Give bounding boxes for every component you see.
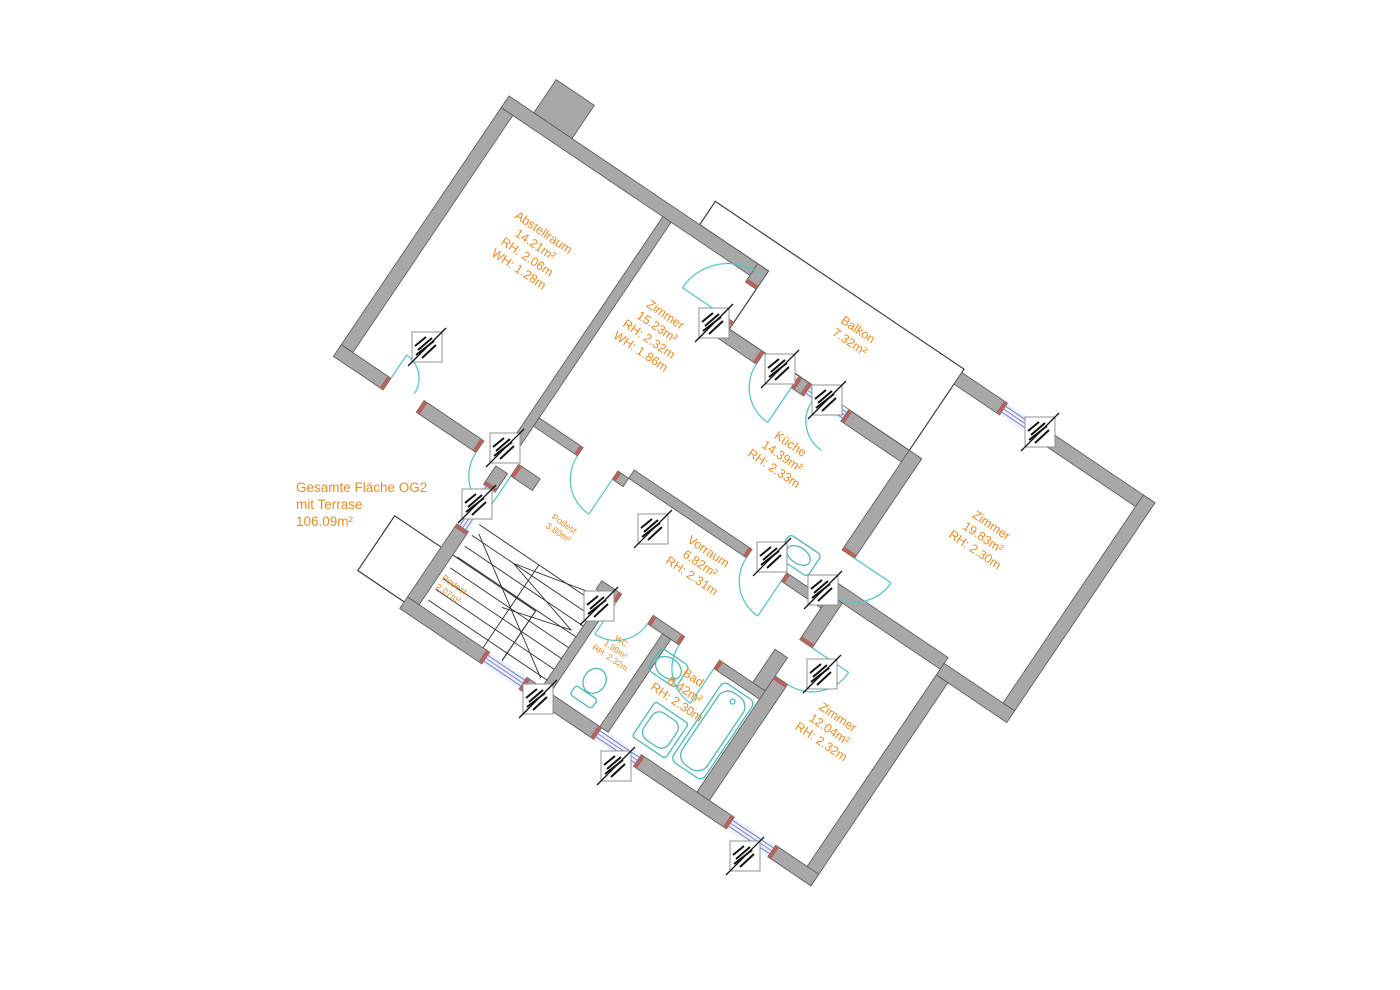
wall [511, 464, 540, 490]
wall [341, 108, 513, 353]
stair-tread [472, 535, 591, 615]
wall [842, 450, 922, 558]
zimmer1-door-stamp [634, 510, 672, 548]
wall [936, 663, 1014, 722]
kueche-door-stamp [753, 538, 791, 576]
stair-tread [450, 568, 569, 648]
sw-window-stamp [519, 680, 557, 718]
kueche-balcony-window-stamp [808, 381, 846, 419]
wall [534, 418, 584, 456]
bathtub-drain [729, 698, 736, 705]
wc-toilet-bowl [578, 664, 611, 698]
wc-door-stamp [580, 587, 618, 625]
room-label-wc: WC1.96m²RH: 2.32m [591, 626, 641, 674]
stair-tread [457, 557, 576, 637]
floor-plan-svg: Abstellraum14.21m²RH: 2.06mWH: 1.28mZimm… [0, 0, 1400, 990]
kitchen-sink-bowl [783, 542, 814, 570]
room-label-podest-zg: Podest2.07m² [434, 573, 469, 606]
kueche-balcony-door-leaf [768, 388, 791, 423]
wall [830, 583, 948, 669]
zimmer1-door-arc [554, 456, 612, 514]
stair-tread [465, 546, 584, 626]
wall [697, 676, 788, 800]
wall [400, 597, 490, 664]
total-area-line-2: mit Terrase [296, 496, 427, 513]
abstellraum-window-stamp [408, 328, 446, 366]
zimmer3-window-stamp [726, 837, 764, 875]
zimmer2-door-stamp [804, 571, 842, 609]
room-label-podest-og: Podest3.80m² [544, 512, 579, 545]
zimmer2-door-leaf [855, 558, 891, 583]
room-label-zimmer-3: Zimmer12.04m²RH: 2.32m [793, 695, 867, 764]
room-label-balkon: Balkon7.32m² [830, 313, 878, 359]
zimmer3-door-stamp [803, 655, 841, 693]
kueche-balcony-door-stamp [761, 350, 799, 388]
total-area-line-1: Gesamte Fläche OG2 [296, 479, 427, 496]
wall [416, 401, 484, 453]
kueche-door-leaf [758, 581, 781, 616]
room-label-zimmer-2: Zimmer19.83m²RH: 2.30m [946, 503, 1020, 572]
bad-window-stamp [597, 747, 635, 785]
wall [333, 345, 391, 390]
total-area-line-3: 106.09m² [296, 513, 427, 530]
floor-plan-page: Gesamte Fläche OG2 mit Terrase 106.09m² … [0, 0, 1400, 990]
sw-window-glazing [486, 658, 523, 683]
room-label-abstellraum: Abstellraum14.21m²RH: 2.06mWH: 1.28m [488, 208, 575, 293]
stair-window-stamp [458, 485, 496, 523]
zimmer1-door-leaf [589, 479, 612, 514]
entrance-door-stamp [486, 429, 524, 467]
zimmer2-window-stamp [1021, 413, 1059, 451]
room-label-zimmer-1: Zimmer15.23m²RH: 2.32mWH: 1.86m [611, 291, 695, 374]
total-area-label: Gesamte Fläche OG2 mit Terrase 106.09m² [296, 479, 427, 530]
wc-toilet [570, 663, 613, 709]
room-label-bad: Bad8.42m²RH: 2.30m [648, 655, 722, 724]
wc-toilet-tank [570, 685, 598, 709]
wall [1003, 495, 1155, 711]
zimmer1-balcony-door-stamp [695, 304, 733, 342]
abstellraum-opening-leaf [391, 355, 407, 378]
